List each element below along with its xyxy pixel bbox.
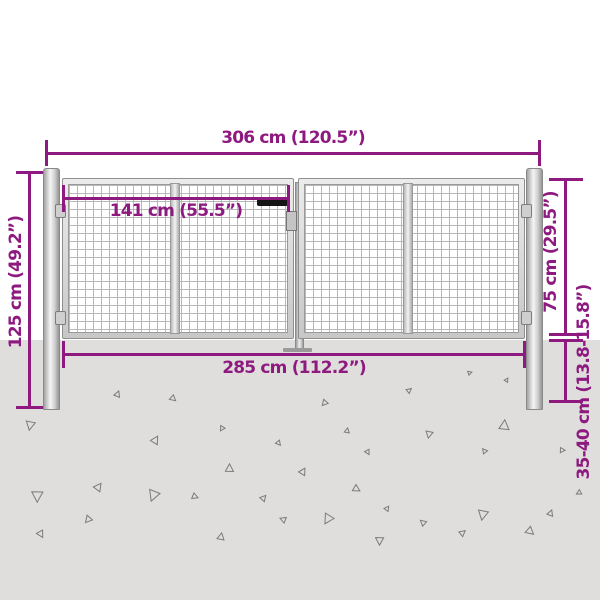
ground-triangle [344, 427, 350, 433]
ground-triangle [364, 449, 370, 455]
ground-triangle [260, 494, 268, 502]
ground-triangle [225, 463, 234, 472]
ground-triangle [384, 505, 391, 512]
ground-triangle [406, 387, 413, 394]
dim-label-gate-height: 75 cm (29.5”) [541, 102, 561, 402]
ground-triangle [83, 515, 93, 525]
leaf-right-middle-bar [403, 183, 413, 334]
ground-triangle [218, 425, 225, 432]
dim-line-inner-width [63, 353, 525, 356]
ground-triangle [299, 467, 309, 477]
ground-triangle [150, 434, 161, 445]
ground-triangle [93, 481, 104, 492]
gate-leaf-right [298, 178, 525, 339]
ground-triangle [114, 390, 122, 398]
ground-triangle [217, 532, 226, 541]
ground-triangle [424, 430, 433, 439]
ground-triangle [524, 526, 535, 537]
dim-line-leaf-width [63, 197, 289, 200]
ground-triangle [191, 493, 199, 501]
ground-triangle [275, 440, 282, 447]
dim-line-gate-height [564, 179, 567, 336]
dim-label-inner-width: 285 cm (112.2”) [144, 358, 444, 378]
ground-triangle [169, 395, 177, 403]
hinge-bottom-left [55, 311, 66, 325]
ground-triangle [504, 377, 510, 383]
ground-triangle [419, 518, 427, 526]
center-drop-rod-foot [283, 348, 312, 352]
dim-end-inner-width-right [523, 341, 526, 368]
ground-triangle [499, 419, 511, 431]
ground-triangle [459, 529, 467, 537]
dim-end-inner-width-left [62, 341, 65, 368]
ground-triangle [36, 530, 45, 539]
hinge-top-right [521, 204, 532, 218]
ground-triangle [145, 488, 160, 503]
ground-triangle [481, 447, 488, 454]
dim-end-total-width-left [45, 140, 48, 166]
ground-triangle [320, 399, 328, 407]
dim-label-ground-depth: 35-40 cm (13.8-15.8”) [574, 232, 594, 532]
ground-triangle [352, 485, 362, 495]
ground-triangle [476, 509, 489, 522]
ground-triangle [279, 515, 287, 523]
dim-label-leaf-width: 141 cm (55.5”) [26, 201, 326, 221]
ground-triangle [468, 371, 473, 376]
dim-line-ground-depth [564, 340, 567, 402]
gate-dimension-diagram: 306 cm (120.5”) 141 cm (55.5”) 285 cm (1… [0, 0, 600, 600]
hinge-bottom-right [521, 311, 532, 325]
ground-triangle [374, 536, 383, 545]
ground-triangle [547, 509, 555, 517]
dim-label-post-height: 125 cm (49.2”) [6, 132, 26, 432]
ground-triangle [30, 490, 43, 503]
dim-line-total-width [46, 152, 540, 155]
ground-triangle [320, 512, 334, 526]
dim-line-post-height [28, 172, 31, 408]
ground-triangle [560, 448, 566, 454]
dim-label-total-width: 306 cm (120.5”) [143, 128, 443, 148]
